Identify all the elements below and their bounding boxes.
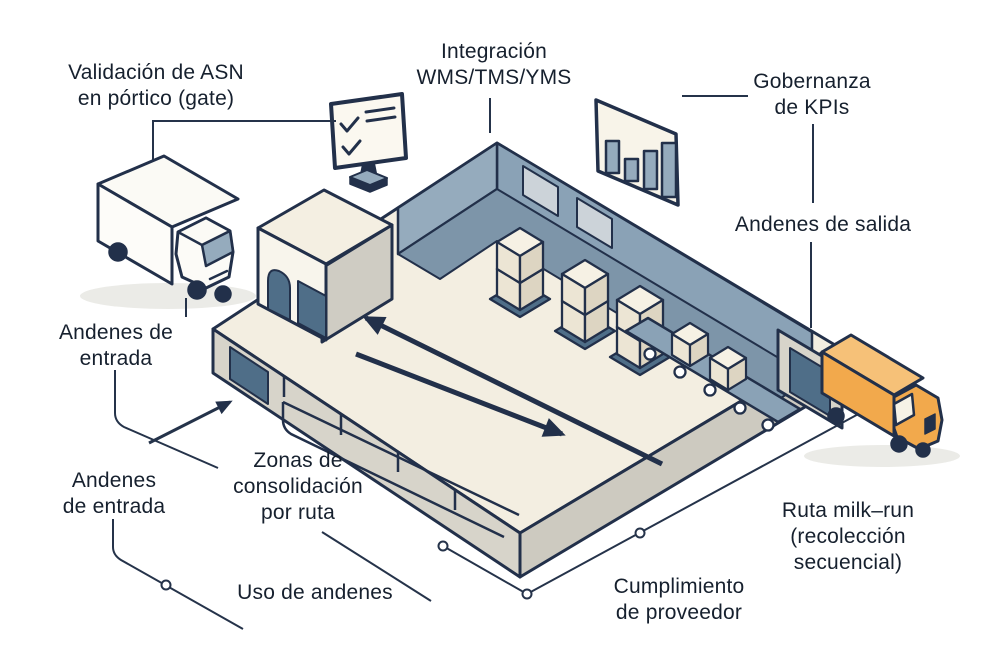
label-milk-run: Ruta milk–run (recolección secuencial) <box>782 498 914 576</box>
callout-asn <box>153 121 336 168</box>
label-consolidation-zones: Zonas de consolidación por ruta <box>233 448 363 526</box>
label-kpi-governance: Gobernanza de KPIs <box>753 69 871 121</box>
label-outbound-docks: Andenes de salida <box>735 212 911 238</box>
label-inbound-docks-lower: Andenes de entrada <box>63 468 165 520</box>
label-asn-validation: Validación de ASN en pórtico (gate) <box>68 60 244 112</box>
label-inbound-docks-upper: Andenes de entrada <box>59 320 173 372</box>
inbound-truck-icon <box>98 156 238 302</box>
label-dock-usage: Uso de andenes <box>237 580 393 606</box>
outbound-truck-icon <box>822 335 942 457</box>
callout-inbound-lower <box>113 519 243 629</box>
diagram-canvas: Validación de ASN en pórtico (gate) Inte… <box>0 0 1000 667</box>
callout-inbound-to-zones <box>115 370 218 468</box>
monitor-checklist-icon <box>331 94 406 192</box>
kpi-bar-chart-icon <box>596 100 678 205</box>
label-supplier-compliance: Cumplimiento de proveedor <box>614 574 745 626</box>
label-integration: Integración WMS/TMS/YMS <box>416 39 571 91</box>
callout-zones-arrow <box>149 402 230 443</box>
